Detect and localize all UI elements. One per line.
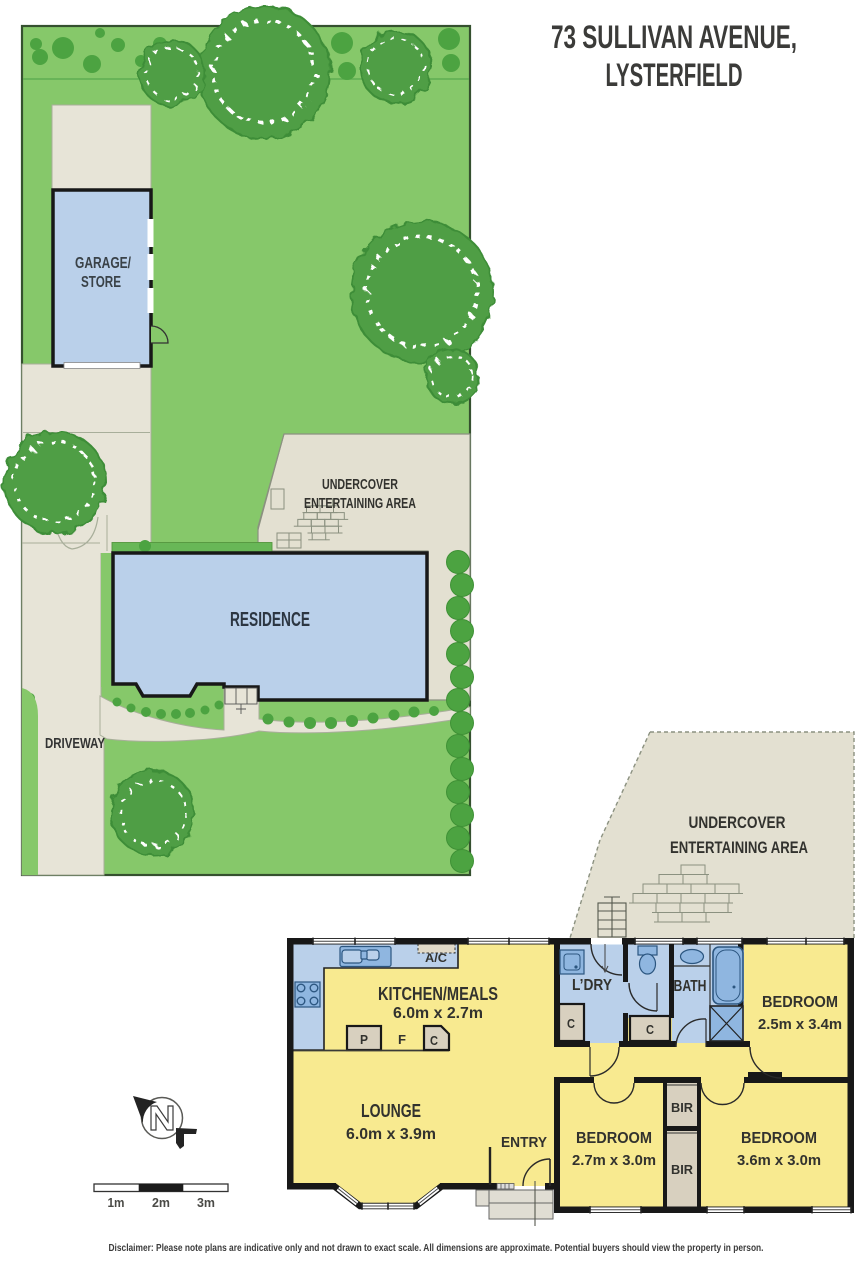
svg-text:BEDROOM: BEDROOM bbox=[576, 1130, 652, 1147]
svg-text:GARAGE/: GARAGE/ bbox=[75, 255, 132, 272]
svg-text:BEDROOM: BEDROOM bbox=[762, 994, 838, 1011]
svg-text:3m: 3m bbox=[197, 1196, 215, 1210]
svg-text:UNDERCOVER: UNDERCOVER bbox=[322, 477, 398, 493]
svg-text:3.6m x 3.0m: 3.6m x 3.0m bbox=[737, 1153, 821, 1169]
svg-text:BATH: BATH bbox=[674, 978, 707, 995]
svg-text:A/C: A/C bbox=[425, 951, 447, 965]
svg-text:RESIDENCE: RESIDENCE bbox=[230, 609, 310, 631]
svg-text:C: C bbox=[646, 1022, 655, 1037]
svg-text:6.0m x 2.7m: 6.0m x 2.7m bbox=[393, 1005, 483, 1022]
svg-text:BEDROOM: BEDROOM bbox=[741, 1130, 817, 1147]
svg-text:STORE: STORE bbox=[81, 274, 121, 291]
svg-text:73 SULLIVAN AVENUE,: 73 SULLIVAN AVENUE, bbox=[551, 19, 797, 55]
svg-text:2m: 2m bbox=[152, 1196, 170, 1210]
svg-text:UNDERCOVER: UNDERCOVER bbox=[689, 813, 786, 832]
svg-text:LYSTERFIELD: LYSTERFIELD bbox=[606, 57, 743, 93]
svg-text:1m: 1m bbox=[108, 1196, 125, 1210]
svg-text:ENTERTAINING AREA: ENTERTAINING AREA bbox=[304, 496, 416, 512]
svg-text:P: P bbox=[360, 1032, 368, 1047]
svg-text:6.0m x 3.9m: 6.0m x 3.9m bbox=[346, 1126, 436, 1143]
svg-text:2.7m x 3.0m: 2.7m x 3.0m bbox=[572, 1153, 656, 1169]
svg-text:KITCHEN/MEALS: KITCHEN/MEALS bbox=[378, 984, 498, 1004]
svg-text:2.5m x 3.4m: 2.5m x 3.4m bbox=[758, 1017, 842, 1033]
svg-text:BIR: BIR bbox=[671, 1163, 693, 1177]
svg-text:ENTRY: ENTRY bbox=[501, 1134, 547, 1151]
svg-text:DRIVEWAY: DRIVEWAY bbox=[45, 736, 105, 752]
svg-text:L’DRY: L’DRY bbox=[572, 977, 613, 994]
svg-text:F: F bbox=[398, 1032, 406, 1047]
svg-text:Disclaimer: Please note plans: Disclaimer: Please note plans are indica… bbox=[109, 1243, 764, 1254]
svg-text:ENTERTAINING AREA: ENTERTAINING AREA bbox=[670, 838, 808, 857]
svg-text:LOUNGE: LOUNGE bbox=[361, 1101, 421, 1121]
svg-text:C: C bbox=[430, 1033, 439, 1048]
svg-text:C: C bbox=[567, 1016, 576, 1031]
svg-text:BIR: BIR bbox=[671, 1101, 693, 1115]
